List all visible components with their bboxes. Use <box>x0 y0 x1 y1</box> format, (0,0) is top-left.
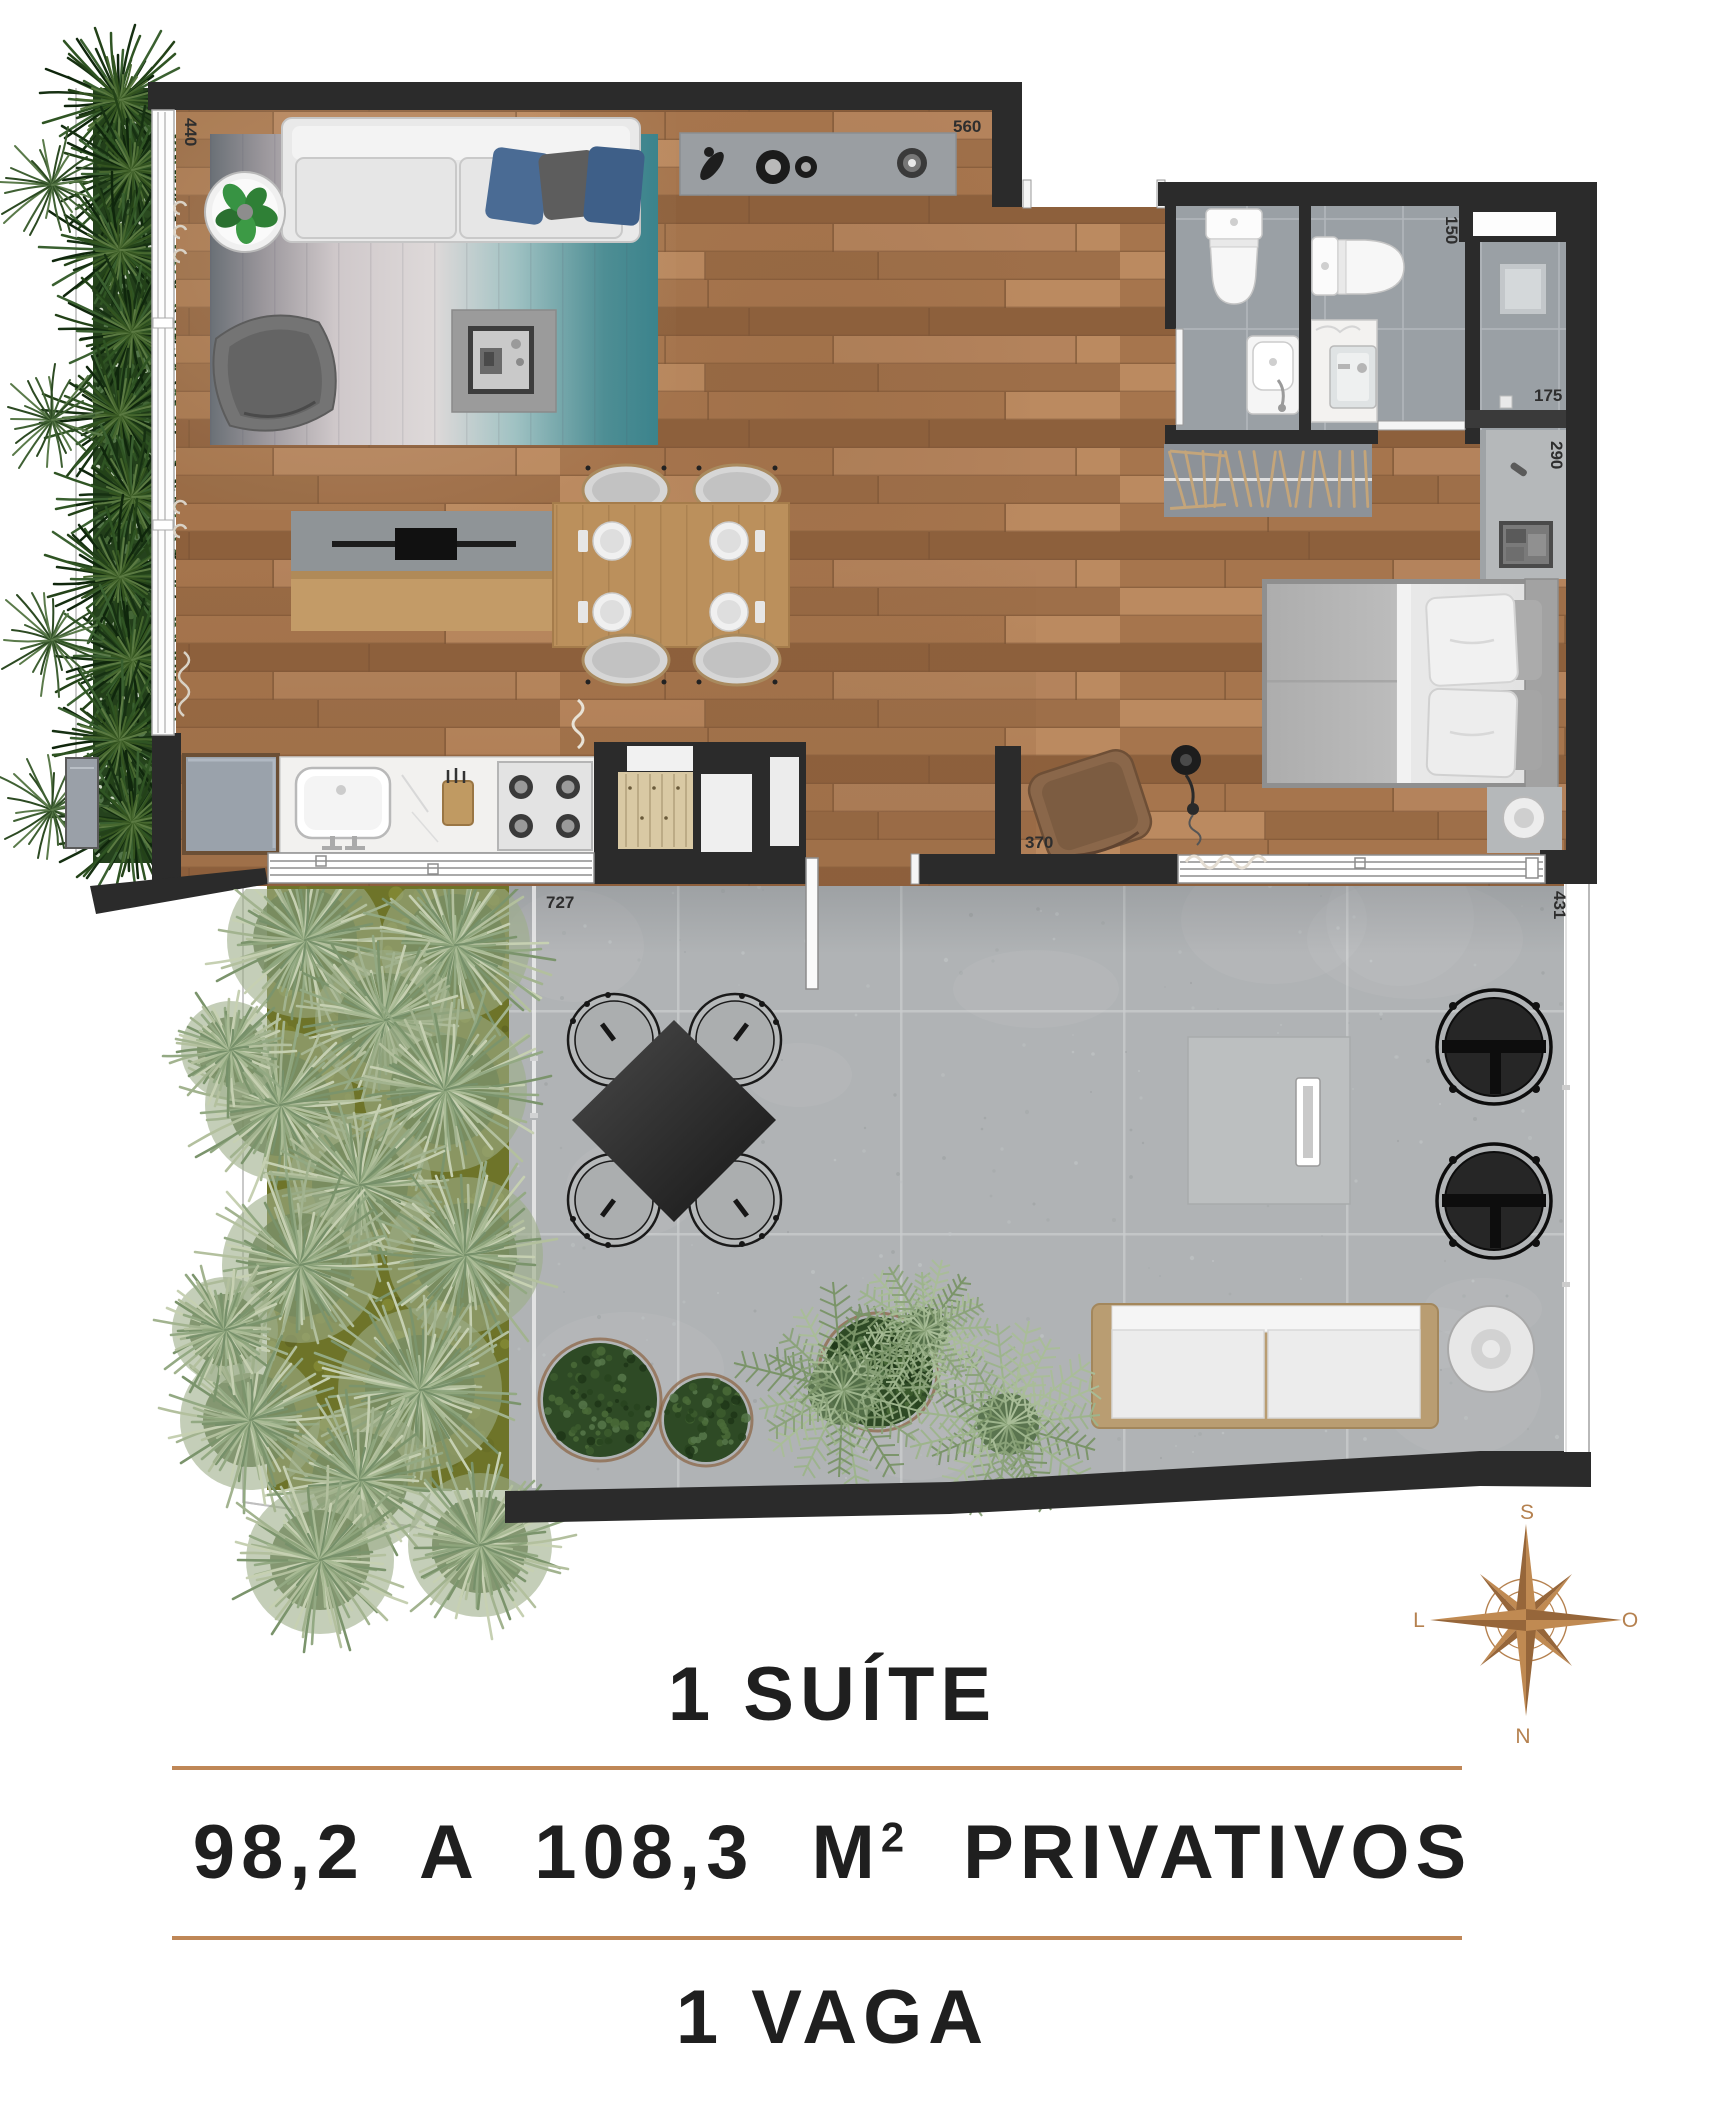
svg-text:L: L <box>1413 1609 1425 1632</box>
svg-text:O: O <box>1622 1609 1638 1632</box>
svg-text:S: S <box>1520 1501 1534 1524</box>
